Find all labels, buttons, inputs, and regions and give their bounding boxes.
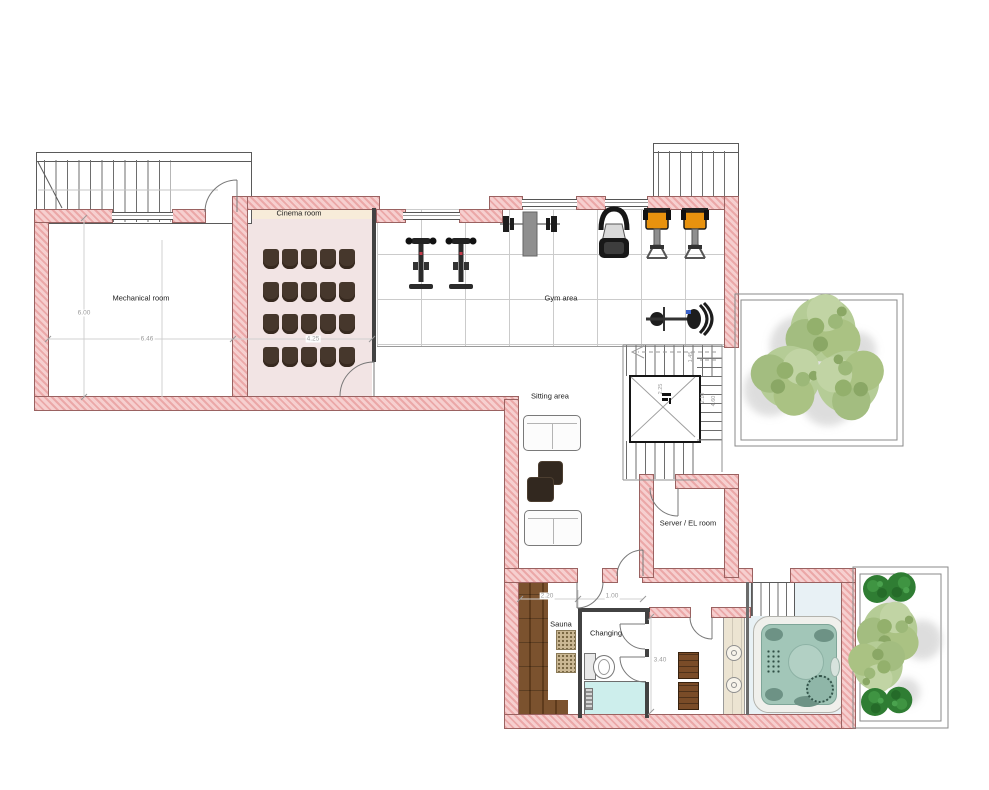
cabinet [678,652,699,679]
wall-segment [233,197,379,209]
floor-plan: Mechanical room Cinema room Gym area Sit… [0,0,989,790]
cinema-seat [301,249,317,269]
cinema-seat [263,282,279,302]
hot-tub-pillow [830,657,840,677]
hot-tub-jet-grid [766,649,782,673]
dim-mechanical-height: 6.00 [77,310,92,317]
wall-segment [377,210,405,222]
partition-wall [746,582,749,715]
dim-elevator-width: 2.25 [658,384,664,395]
cinema-seat [263,249,279,269]
door-server [650,488,678,516]
wall-segment [842,569,855,728]
wall-panel [723,614,745,714]
door-corridor [690,617,712,639]
dim-stair-width: 2.10 [700,393,706,404]
wall-segment [791,569,855,582]
dim-mechanical-width: 6.46 [140,336,155,343]
room-label-gym: Gym area [545,294,578,303]
wall-segment [650,608,690,617]
gym-floor-tiles [377,209,725,347]
sofa [523,415,581,451]
sofa [524,510,582,546]
partition-wall [645,682,649,718]
hot-tub-seat [765,688,783,701]
wall-light [726,677,742,693]
partition-wall [372,208,376,362]
door-changing-2 [620,657,645,682]
wall-segment [490,197,522,209]
stairwell-lower-flight [626,441,697,479]
room-label-sitting: Sitting area [531,392,569,401]
partition-wall [645,608,649,624]
cinema-seat [320,282,336,302]
cinema-seat [339,314,355,334]
dim-stairwell-depth: 4.60 [711,396,717,407]
partition-wall [578,608,650,612]
wall-segment [35,210,112,222]
dim-corridor-width: 1.00 [605,593,620,600]
cinema-seat [282,282,298,302]
cinema-seat [339,249,355,269]
cinema-seat [301,347,317,367]
window [605,199,648,207]
courtyard-planter [735,294,903,446]
cinema-seat [320,249,336,269]
window [522,199,577,207]
ottoman [527,477,554,502]
bottom-planter [853,567,948,728]
courtyard-trees [741,294,889,426]
hot-tub-stairs [751,582,795,616]
room-label-sauna: Sauna [550,620,572,629]
wall-segment [173,210,205,222]
wall-segment [505,569,577,582]
cinema-seat [263,347,279,367]
room-label-server-el: Server / EL room [660,519,716,528]
dim-sauna-width: 2.20 [540,593,555,600]
wall-segment [603,569,617,582]
partition-wall [645,649,649,657]
cinema-seat [320,347,336,367]
cinema-seat [282,347,298,367]
partition-wall [578,608,582,718]
planter-trees [846,572,942,721]
cabinet [678,682,699,710]
window [112,212,173,220]
shower [584,681,646,717]
door-sauna-corridor [577,582,603,608]
cinema-seat [301,314,317,334]
toilet-bowl [593,655,615,679]
wall-segment [233,197,247,410]
cinema-seat [263,314,279,334]
wall-segment [640,475,653,577]
wall-segment [35,210,48,410]
wall-segment [725,197,738,347]
window [403,212,460,220]
wall-segment [505,400,518,728]
hot-tub [753,616,845,713]
dim-stair-run: 1.45 [688,352,694,363]
door-changing-1 [620,624,645,649]
room-label-changing: Changing [590,629,622,638]
cinema-seat [282,314,298,334]
hot-tub-seat [765,628,783,641]
wall-segment [460,210,502,222]
dim-changing-depth: 3.40 [653,657,668,664]
room-label-cinema: Cinema room [276,209,321,218]
shower-fixture [585,688,593,710]
room-label-mechanical: Mechanical room [112,294,169,303]
cinema-seat [320,314,336,334]
sauna-heater [556,653,576,673]
hot-tub-seat [814,629,834,642]
wall-segment [725,475,738,577]
wall-segment [712,608,750,617]
staircase-top-right-treads [658,151,735,203]
hot-tub-jets [806,675,834,703]
wall-segment [577,197,605,209]
wall-segment [35,397,518,410]
wall-light [726,645,742,661]
cinema-seat [282,249,298,269]
wall-segment [676,475,738,488]
sauna-bench-vertical [518,582,548,715]
dim-cinema-width: 4.25 [306,336,321,343]
sauna-bench-bottom [518,700,568,715]
cinema-seats [263,249,358,369]
cinema-seat [339,347,355,367]
wall-segment [505,715,855,728]
elevator [629,375,701,443]
cinema-seat [339,282,355,302]
cinema-seat [301,282,317,302]
wall-segment [648,197,737,209]
sauna-heater [556,630,576,650]
